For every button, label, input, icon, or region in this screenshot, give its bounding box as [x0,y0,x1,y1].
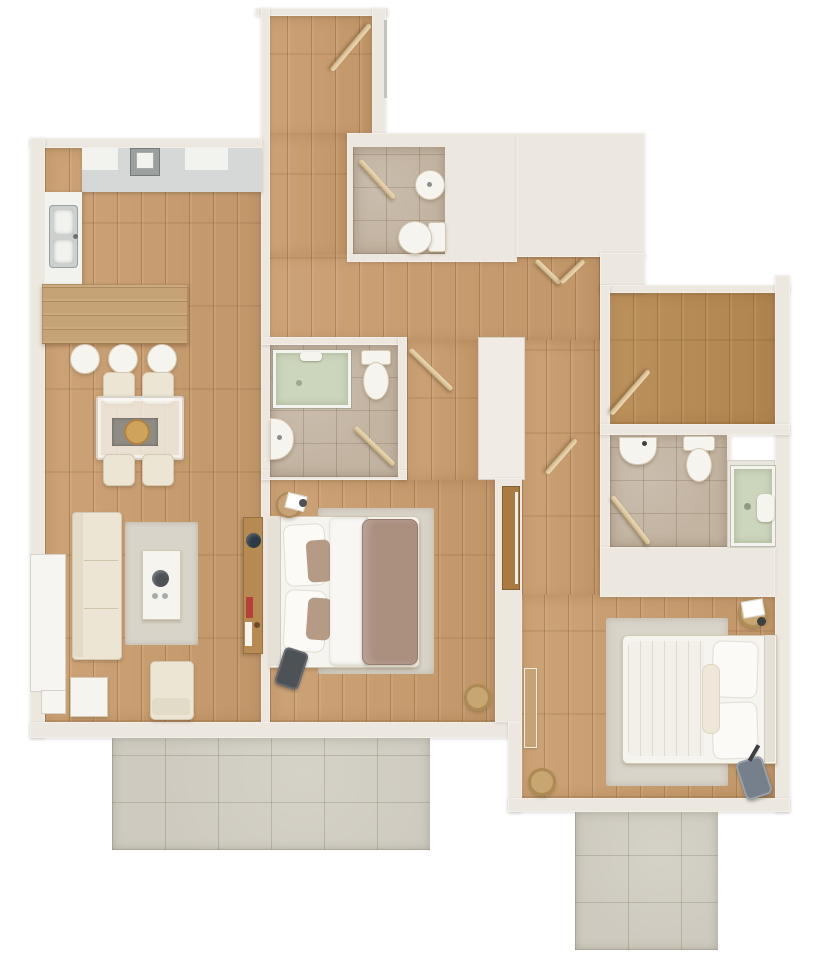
kitchen-faucet [73,234,78,239]
right-bathroom-toilet-bowl [686,448,712,482]
dining-centerpiece [124,419,150,445]
kitchen-sink-basin-2 [53,239,74,264]
coffee-table-cup-1 [152,593,158,599]
hallway-floor-upper [263,133,347,258]
balcony-left-floor [112,738,430,850]
ensuite-shower-fixture [300,352,322,361]
ensuite-shower-drain [296,380,302,386]
master-pillow-accent-1 [306,539,333,583]
sofa-cushion-divider-2 [84,608,118,609]
master-blanket [362,519,418,665]
floor-plan [0,0,821,978]
bar-stool-2 [108,344,138,374]
upper-bathroom-toilet-bowl [398,221,432,254]
dining-chair-bottom-1 [103,454,135,486]
coffee-table-bowl [152,570,169,587]
master-nightstand-vase [299,499,307,507]
wall-right-room-top [600,285,790,293]
master-basket-plant [464,684,491,711]
wall-bedroom2-bottom [508,798,790,812]
hallway-floor-top [263,16,372,138]
sofa-backrest [73,513,83,657]
right-shower-drain [744,503,751,510]
wall-bottom-left [30,722,520,738]
master-wardrobe-handle [515,492,518,584]
armchair-back [152,698,190,715]
right-bathroom-sink-tap [642,441,647,446]
master-pillow-accent-2 [306,597,333,641]
hallway-floor-right [522,340,600,600]
wall-right-room-left [600,285,610,560]
coffee-table-cup-2 [162,593,168,599]
bedroom2-sheet-folds [628,641,704,756]
kitchen-cabinet-white-2 [185,148,228,170]
wall-corridor-top [255,8,388,16]
side-table [70,677,108,717]
sofa-cushion-divider-1 [84,560,118,561]
media-shelf-vase [245,622,252,646]
ensuite-toilet-bowl [363,362,389,400]
media-shelf-knob [254,622,260,628]
left-wall-unit [41,690,66,714]
bar-stool-3 [147,344,177,374]
bedroom2-wall-rack [524,668,537,748]
bedroom2-basket-plant [528,768,556,796]
master-closet-block [478,337,525,480]
wall-entry-block [517,133,645,257]
kitchen-cabinet-white-1 [82,148,118,170]
bedroom2-pillow-lumbar [702,664,720,734]
right-shower-fixture [757,494,774,522]
wall-right-bathroom-bottom [600,547,775,597]
ensuite-sink-drain [277,435,282,440]
master-bed-headboard [270,516,281,666]
wall-right-outer [775,275,790,812]
bar-counter [42,284,188,344]
wall-kitchen-top [30,138,262,148]
right-room-floor [609,293,775,424]
dining-chair-bottom-2 [142,454,174,486]
bedroom2-nightstand-kettle [757,617,766,626]
kitchen-sink-basin-1 [53,209,74,235]
hallway-floor-band [263,254,600,342]
wall-right-bathroom-top [600,424,790,435]
media-shelf-books-red [246,597,253,618]
left-wall-niche [30,554,66,692]
kitchen-stove-burner [136,152,154,169]
wall-ensuite-right [398,337,407,480]
bedroom2-bed-headboard [764,635,775,762]
bar-stool-1 [70,344,100,374]
wall-ensuite-top [261,337,407,345]
balcony-right-floor [575,812,718,950]
entry-window-line [384,20,387,98]
upper-bathroom-sink-drain [427,182,432,187]
media-shelf-speaker [246,533,261,548]
